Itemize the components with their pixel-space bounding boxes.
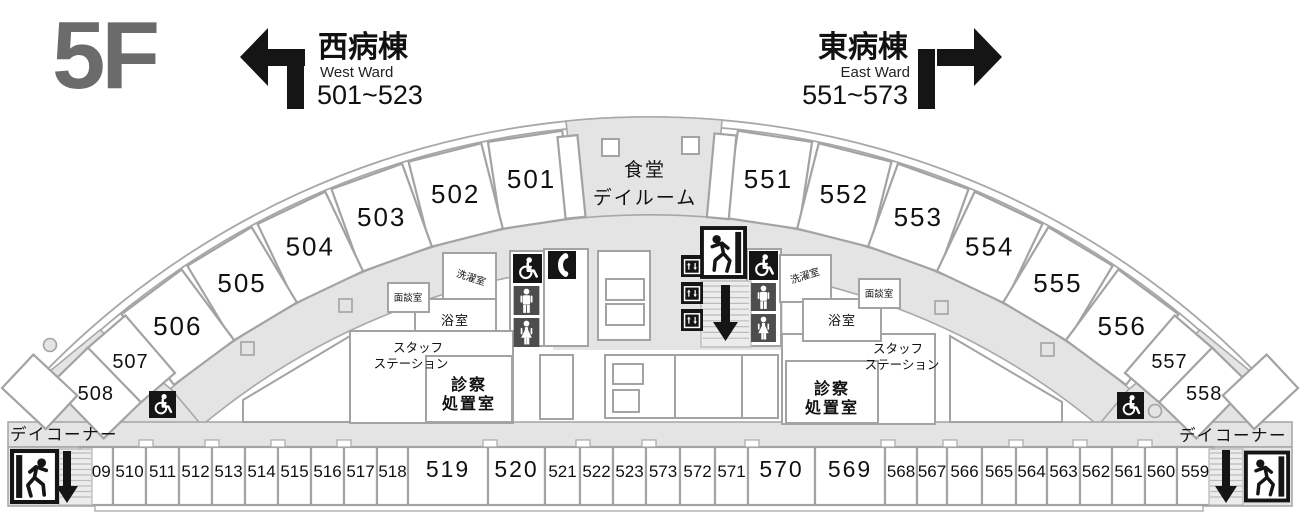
- room-number: 554: [965, 232, 1014, 262]
- room-number: 552: [820, 179, 869, 209]
- room-568: 568: [885, 447, 917, 505]
- stairs-down-arrow: [1222, 450, 1230, 487]
- dining-label-line1: 食堂: [624, 159, 666, 181]
- room-number: 503: [357, 202, 406, 232]
- center-stairs: [701, 281, 751, 347]
- wheelchair-icon: [1117, 392, 1144, 419]
- room-number: 573: [649, 462, 677, 481]
- room-number: 565: [985, 462, 1013, 481]
- wheelchair-icon: [149, 391, 176, 418]
- room-559: 559: [1177, 447, 1213, 505]
- door-frame: [205, 440, 219, 447]
- bottom-rooms: 5095105115125135145155165175185195205215…: [80, 447, 1213, 505]
- east-ward-title: 東病棟: [818, 31, 909, 64]
- door-frame: [576, 440, 590, 447]
- room-512: 512: [179, 447, 212, 505]
- room-number: 570: [759, 456, 803, 482]
- meeting-east-label: 面談室: [865, 288, 894, 300]
- exam-room-west-line1: 診察: [451, 375, 487, 394]
- east-ward-subtitle: East Ward: [841, 64, 910, 81]
- elevator-icon: [681, 309, 703, 331]
- room-515: 515: [278, 447, 311, 505]
- room-519: 519: [408, 447, 488, 505]
- exam-room-west-line2: 処置室: [442, 394, 496, 413]
- room-number: 506: [153, 311, 202, 341]
- bath-west-label: 浴室: [441, 313, 469, 328]
- room-number: 505: [217, 268, 266, 298]
- door-frame: [745, 440, 759, 447]
- room-573: 573: [646, 447, 680, 505]
- day-corner-west-label: デイコーナー: [10, 424, 118, 444]
- room-number: 551: [744, 164, 793, 194]
- room-571: 571: [715, 447, 748, 505]
- west-stairs: [56, 449, 92, 505]
- emergency-exit-icon: [700, 226, 747, 279]
- room-number: 559: [1181, 462, 1209, 481]
- room-564: 564: [1016, 447, 1047, 505]
- mens-toilet-icon: [514, 286, 540, 315]
- elevator-icon: [681, 282, 703, 304]
- room-570: 570: [748, 447, 815, 505]
- room-511: 511: [146, 447, 179, 505]
- room-518: 518: [377, 447, 408, 505]
- dining-label-line2: デイルーム: [593, 187, 697, 209]
- womens-toilet-icon: [751, 314, 776, 342]
- room-516: 516: [311, 447, 344, 505]
- room-520: 520: [488, 447, 545, 505]
- door-frame: [483, 440, 497, 447]
- room-number: 507: [112, 351, 148, 373]
- west-ward-rooms: 501~523: [317, 80, 423, 110]
- pillar: [44, 339, 57, 352]
- womens-toilet-icon: [514, 318, 540, 347]
- room-number: 555: [1033, 268, 1082, 298]
- room-number: 510: [115, 462, 143, 481]
- room-560: 560: [1145, 447, 1177, 505]
- room-number: 560: [1147, 462, 1175, 481]
- room-number: 522: [582, 462, 610, 481]
- wheelchair-icon: [513, 254, 542, 283]
- room-513: 513: [212, 447, 245, 505]
- floor-plan-svg: 5015025035045055065075085515525535545555…: [0, 0, 1301, 526]
- door-frame: [271, 440, 285, 447]
- room-number: 513: [214, 462, 242, 481]
- wheelchair-icon: [749, 251, 778, 280]
- day-corner-east-label: デイコーナー: [1179, 425, 1287, 445]
- room-number: 504: [286, 232, 335, 262]
- room-521: 521: [545, 447, 580, 505]
- room-number: 512: [181, 462, 209, 481]
- room-563: 563: [1047, 447, 1080, 505]
- room-number: 501: [507, 164, 556, 194]
- room-number: 519: [426, 456, 470, 482]
- column-marker: [1041, 343, 1054, 356]
- phone-icon: [548, 251, 576, 279]
- east-stairs: [1209, 449, 1243, 505]
- floor-label: 5F: [52, 2, 157, 109]
- stairs-down-arrow: [63, 451, 71, 487]
- exam-room-east-line2: 処置室: [805, 398, 859, 417]
- room-number: 521: [548, 462, 576, 481]
- west-ward-subtitle: West Ward: [320, 64, 393, 81]
- column-marker: [339, 299, 352, 312]
- exam-room-east-line1: 診察: [814, 379, 850, 398]
- meeting-west-label: 面談室: [394, 292, 423, 304]
- east-ward-rooms: 551~573: [802, 80, 908, 110]
- room-562: 562: [1080, 447, 1112, 505]
- emergency-exit-icon: [10, 449, 59, 504]
- west-ward-sign: 西病棟 West Ward 501~523: [240, 28, 423, 110]
- staff-station-west-line2: ステーション: [374, 357, 449, 371]
- door-frame: [881, 440, 895, 447]
- staff-station-east-line2: ステーション: [865, 358, 940, 372]
- room-522: 522: [580, 447, 613, 505]
- room-number: 520: [494, 456, 538, 482]
- emergency-exit-icon: [1244, 451, 1290, 503]
- room-number: 553: [894, 202, 943, 232]
- column-marker: [935, 301, 948, 314]
- room-number: 516: [313, 462, 341, 481]
- room-number: 572: [683, 462, 711, 481]
- room-510: 510: [113, 447, 146, 505]
- room-number: 523: [615, 462, 643, 481]
- room-number: 508: [78, 383, 114, 405]
- room-number: 518: [378, 462, 406, 481]
- room-number: 564: [1017, 462, 1045, 481]
- column-marker: [241, 342, 254, 355]
- room-number: 517: [346, 462, 374, 481]
- room-number: 562: [1082, 462, 1110, 481]
- bath-east-label: 浴室: [828, 313, 856, 328]
- room-number: 561: [1114, 462, 1142, 481]
- room-number: 563: [1049, 462, 1077, 481]
- room-number: 557: [1151, 351, 1187, 373]
- room-number: 556: [1098, 311, 1147, 341]
- room-number: 569: [828, 456, 872, 482]
- room-number: 567: [918, 462, 946, 481]
- pillar: [1149, 405, 1162, 418]
- east-ward-sign: 東病棟 East Ward 551~573: [802, 28, 1002, 110]
- door-frame: [1073, 440, 1087, 447]
- room-514: 514: [245, 447, 278, 505]
- door-frame: [337, 440, 351, 447]
- door-frame: [642, 440, 656, 447]
- staff-station-west-line1: スタッフ: [393, 341, 443, 355]
- room-567: 567: [917, 447, 947, 505]
- room-number: 568: [887, 462, 915, 481]
- room-number: 566: [950, 462, 978, 481]
- door-frame: [943, 440, 957, 447]
- door-frame: [1138, 440, 1152, 447]
- room-517: 517: [344, 447, 377, 505]
- mens-toilet-icon: [751, 283, 776, 311]
- floor-map-5f: 5015025035045055065075085515525535545555…: [0, 0, 1301, 526]
- room-number: 514: [247, 462, 275, 481]
- room-561: 561: [1112, 447, 1145, 505]
- room-number: 502: [431, 179, 480, 209]
- staff-station-east-line1: スタッフ: [873, 342, 923, 356]
- room-569: 569: [815, 447, 885, 505]
- stairs-down-arrow: [721, 285, 730, 323]
- room-number: 571: [717, 462, 745, 481]
- room-565: 565: [982, 447, 1016, 505]
- room-number: 511: [149, 462, 176, 481]
- elevator-icon: [681, 255, 703, 277]
- room-number: 558: [1186, 383, 1222, 405]
- west-ward-title: 西病棟: [318, 31, 409, 64]
- room-number: 515: [280, 462, 308, 481]
- door-frame: [1009, 440, 1023, 447]
- room-572: 572: [680, 447, 715, 505]
- room-523: 523: [613, 447, 646, 505]
- door-frame: [139, 440, 153, 447]
- room-566: 566: [947, 447, 982, 505]
